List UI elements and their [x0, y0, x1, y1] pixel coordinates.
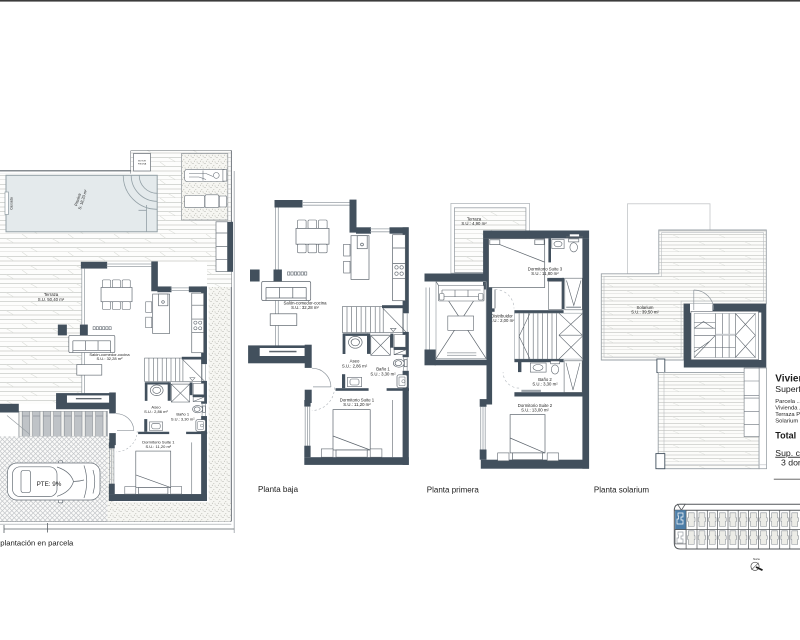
svg-text:S.U.: 32,28 m²: S.U.: 32,28 m²	[291, 305, 319, 310]
svg-text:S.U.: 11,20 m²: S.U.: 11,20 m²	[343, 402, 371, 407]
svg-text:Planta solarium: Planta solarium	[594, 485, 649, 494]
svg-text:S.U. 50,40 m²: S.U. 50,40 m²	[38, 297, 65, 302]
svg-text:Norte: Norte	[753, 557, 760, 561]
svg-text:3 dor: 3 dor	[781, 457, 800, 467]
svg-text:Vivienda ........: Vivienda ........	[775, 405, 800, 411]
svg-text:Baño 1: Baño 1	[376, 366, 390, 371]
svg-text:MOTOR: MOTOR	[138, 161, 146, 163]
svg-text:Solarium ........: Solarium ........	[775, 419, 800, 425]
svg-text:Cascada: Cascada	[10, 197, 14, 210]
svg-text:S.U.: 2,00 m²: S.U.: 2,00 m²	[489, 318, 515, 323]
svg-text:S.U.: 3,30 m²: S.U.: 3,30 m²	[532, 382, 558, 387]
svg-text:PTE: 9%: PTE: 9%	[37, 481, 62, 488]
svg-text:Superficies: Superficies	[775, 384, 800, 394]
svg-text:S.U.: 39,50 m²: S.U.: 39,50 m²	[631, 310, 659, 315]
svg-text:Planta primera: Planta primera	[427, 485, 480, 494]
svg-text:Sup. co: Sup. co	[775, 448, 800, 458]
svg-text:Terraza P .......: Terraza P .......	[775, 412, 800, 418]
svg-text:S.U.: 4,90 m²: S.U.: 4,90 m²	[461, 221, 487, 226]
svg-text:Total: Total	[775, 431, 796, 441]
svg-text:S.U.: 2,86 m²: S.U.: 2,86 m²	[342, 364, 368, 369]
svg-text:PISCINA: PISCINA	[138, 163, 147, 166]
svg-text:S.U.: 13,00 m²: S.U.: 13,00 m²	[521, 408, 549, 413]
svg-text:S.U.: 3,30 m²: S.U.: 3,30 m²	[370, 372, 396, 377]
svg-text:S.U.: 11,80 m²: S.U.: 11,80 m²	[531, 271, 559, 276]
svg-text:Parcela ..........: Parcela ..........	[775, 399, 800, 405]
svg-text:Planta baja: Planta baja	[258, 485, 299, 494]
svg-text:Implantación en parcela: Implantación en parcela	[0, 538, 74, 547]
